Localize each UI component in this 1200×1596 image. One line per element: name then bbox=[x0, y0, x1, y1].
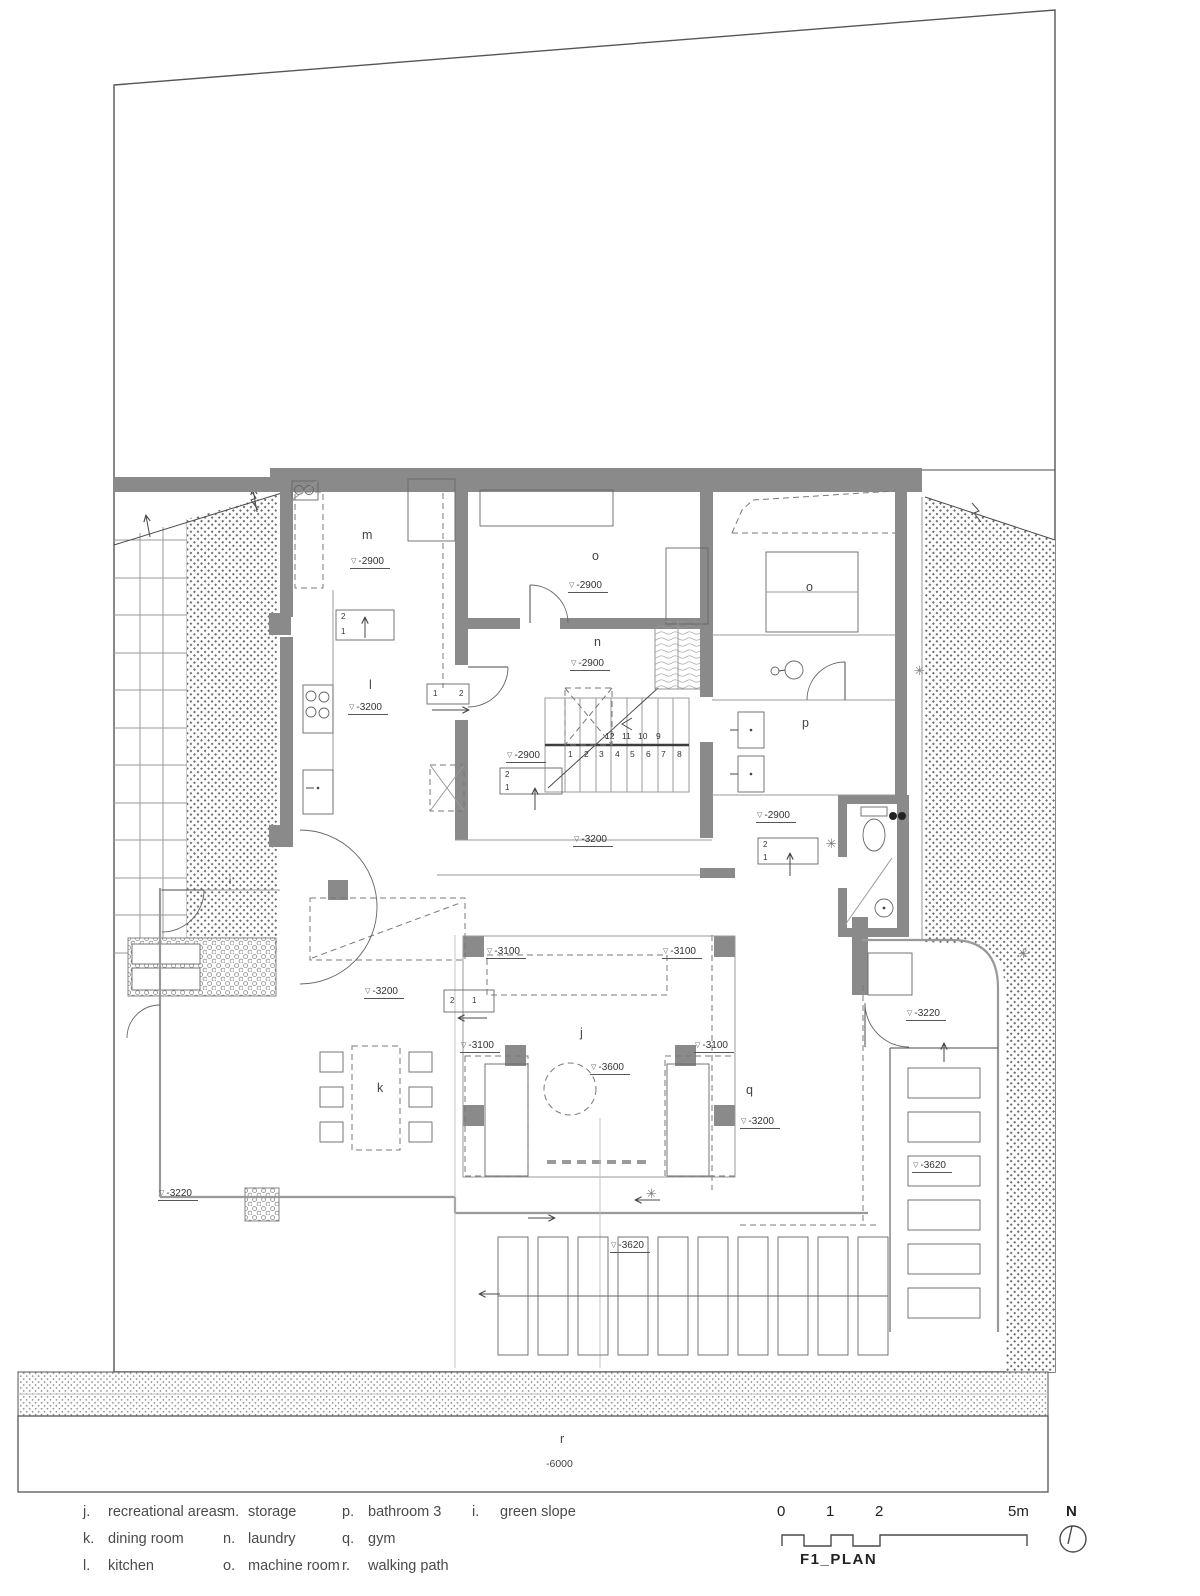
room-label-recreational: j bbox=[580, 1026, 583, 1040]
elevation-kitchen: -3200 bbox=[348, 702, 388, 715]
legend-label: machine room bbox=[248, 1558, 340, 1574]
walking-path-band bbox=[18, 1416, 1048, 1492]
floor-plan-page: ✳ ✳ ✳ ✳ m l o n o p j k q r i -2900 -290… bbox=[0, 0, 1200, 1596]
legend-key: j. bbox=[83, 1504, 90, 1520]
elevation-hall-low: -3200 bbox=[573, 834, 613, 847]
room-label-dining: k bbox=[377, 1081, 383, 1095]
legend-key: p. bbox=[342, 1504, 354, 1520]
elevation-dining: -3200 bbox=[364, 986, 404, 999]
step-marker-digit: 1 bbox=[763, 853, 767, 862]
legend-label: recreational areas bbox=[108, 1504, 224, 1520]
legend-key: r. bbox=[342, 1558, 350, 1574]
stair-number: 3 bbox=[599, 749, 604, 759]
legend-label: kitchen bbox=[108, 1558, 154, 1574]
room-label-kitchen: l bbox=[369, 678, 372, 692]
legend-key: o. bbox=[223, 1558, 235, 1574]
legend-key: q. bbox=[342, 1531, 354, 1547]
legend-label: bathroom 3 bbox=[368, 1504, 441, 1520]
legend-label: green slope bbox=[500, 1504, 576, 1520]
paver-square bbox=[245, 1188, 279, 1221]
legend-label: storage bbox=[248, 1504, 296, 1520]
tree-icon: ✳ bbox=[914, 664, 925, 679]
stair-number: 2 bbox=[584, 749, 589, 759]
drawing-title: F1_PLAN bbox=[800, 1551, 877, 1568]
scale-tick-2: 2 bbox=[875, 1503, 883, 1520]
step-marker-digit: 1 bbox=[505, 783, 509, 792]
step-marker-digit: 1 bbox=[472, 996, 476, 1005]
room-label-machine-room-2: o bbox=[806, 580, 813, 594]
stair-number: 7 bbox=[661, 749, 666, 759]
step-marker-digit: 2 bbox=[450, 996, 454, 1005]
floor-plan-drawing: ✳ ✳ ✳ ✳ bbox=[0, 0, 1200, 1596]
north-arrow-icon bbox=[1060, 1526, 1086, 1552]
room-label-green-slope: i bbox=[229, 876, 231, 887]
elevation-gym: -3200 bbox=[740, 1116, 780, 1129]
elevation-stones-right: -3620 bbox=[912, 1160, 952, 1173]
elevation-machine-room-1: -2900 bbox=[568, 580, 608, 593]
step-marker-digit: 2 bbox=[505, 770, 509, 779]
elevation-court-ml: -3100 bbox=[460, 1040, 500, 1053]
legend-label: walking path bbox=[368, 1558, 449, 1574]
elevation-deck: -3620 bbox=[610, 1240, 650, 1253]
elevation-court-tr: -3100 bbox=[662, 946, 702, 959]
step-marker-digit: 2 bbox=[459, 689, 463, 698]
legend-label: laundry bbox=[248, 1531, 296, 1547]
room-label-machine-room-1: o bbox=[592, 549, 599, 563]
elevation-court-mr: -3100 bbox=[694, 1040, 734, 1053]
stair-number: 8 bbox=[677, 749, 682, 759]
elevation-storage: -2900 bbox=[350, 556, 390, 569]
scale-tick-5m: 5m bbox=[1008, 1503, 1029, 1520]
stair-number: 10 bbox=[638, 731, 647, 741]
stair-number: 9 bbox=[656, 731, 661, 741]
tree-icon: ✳ bbox=[1018, 947, 1029, 962]
legend-label: dining room bbox=[108, 1531, 184, 1547]
stair-number: 1 bbox=[568, 749, 573, 759]
legend-key: k. bbox=[83, 1531, 94, 1547]
scale-tick-1: 1 bbox=[826, 1503, 834, 1520]
stair-number: 6 bbox=[646, 749, 651, 759]
stair-number: 5 bbox=[630, 749, 635, 759]
room-label-gym: q bbox=[746, 1083, 753, 1097]
legend-key: m. bbox=[223, 1504, 239, 1520]
north-label: N bbox=[1066, 1503, 1077, 1520]
stair-number: 12 bbox=[605, 731, 614, 741]
tree-icon: ✳ bbox=[826, 837, 837, 852]
elevation-terrace-left: -3220 bbox=[158, 1188, 198, 1201]
room-label-bathroom-3: p bbox=[802, 716, 809, 730]
tree-icon: ✳ bbox=[646, 1187, 657, 1202]
step-marker-digit: 1 bbox=[433, 689, 437, 698]
elevation-lobby: -2900 bbox=[756, 810, 796, 823]
legend-key: l. bbox=[83, 1558, 90, 1574]
scale-tick-0: 0 bbox=[777, 1503, 785, 1520]
legend-key: i. bbox=[472, 1504, 479, 1520]
room-label-laundry: n bbox=[594, 635, 601, 649]
stair-number: 4 bbox=[615, 749, 620, 759]
stair-number: 11 bbox=[622, 731, 631, 741]
elevation-court-tl: -3100 bbox=[486, 946, 526, 959]
elevation-terrace-right: -3220 bbox=[906, 1008, 946, 1021]
scale-bar bbox=[782, 1535, 1027, 1546]
legend-key: n. bbox=[223, 1531, 235, 1547]
step-marker-digit: 1 bbox=[341, 627, 345, 636]
elevation-hall-mid: -2900 bbox=[506, 750, 546, 763]
step-marker-digit: 2 bbox=[763, 840, 767, 849]
room-label-walking-path: r bbox=[560, 1432, 564, 1446]
elevation-court-center: -3600 bbox=[590, 1062, 630, 1075]
legend-label: gym bbox=[368, 1531, 395, 1547]
elevation-laundry: -2900 bbox=[570, 658, 610, 671]
room-label-storage: m bbox=[362, 528, 372, 542]
step-marker-digit: 2 bbox=[341, 612, 345, 621]
elevation-walking-path: -6000 bbox=[546, 1458, 573, 1470]
green-slope-left bbox=[187, 494, 278, 953]
